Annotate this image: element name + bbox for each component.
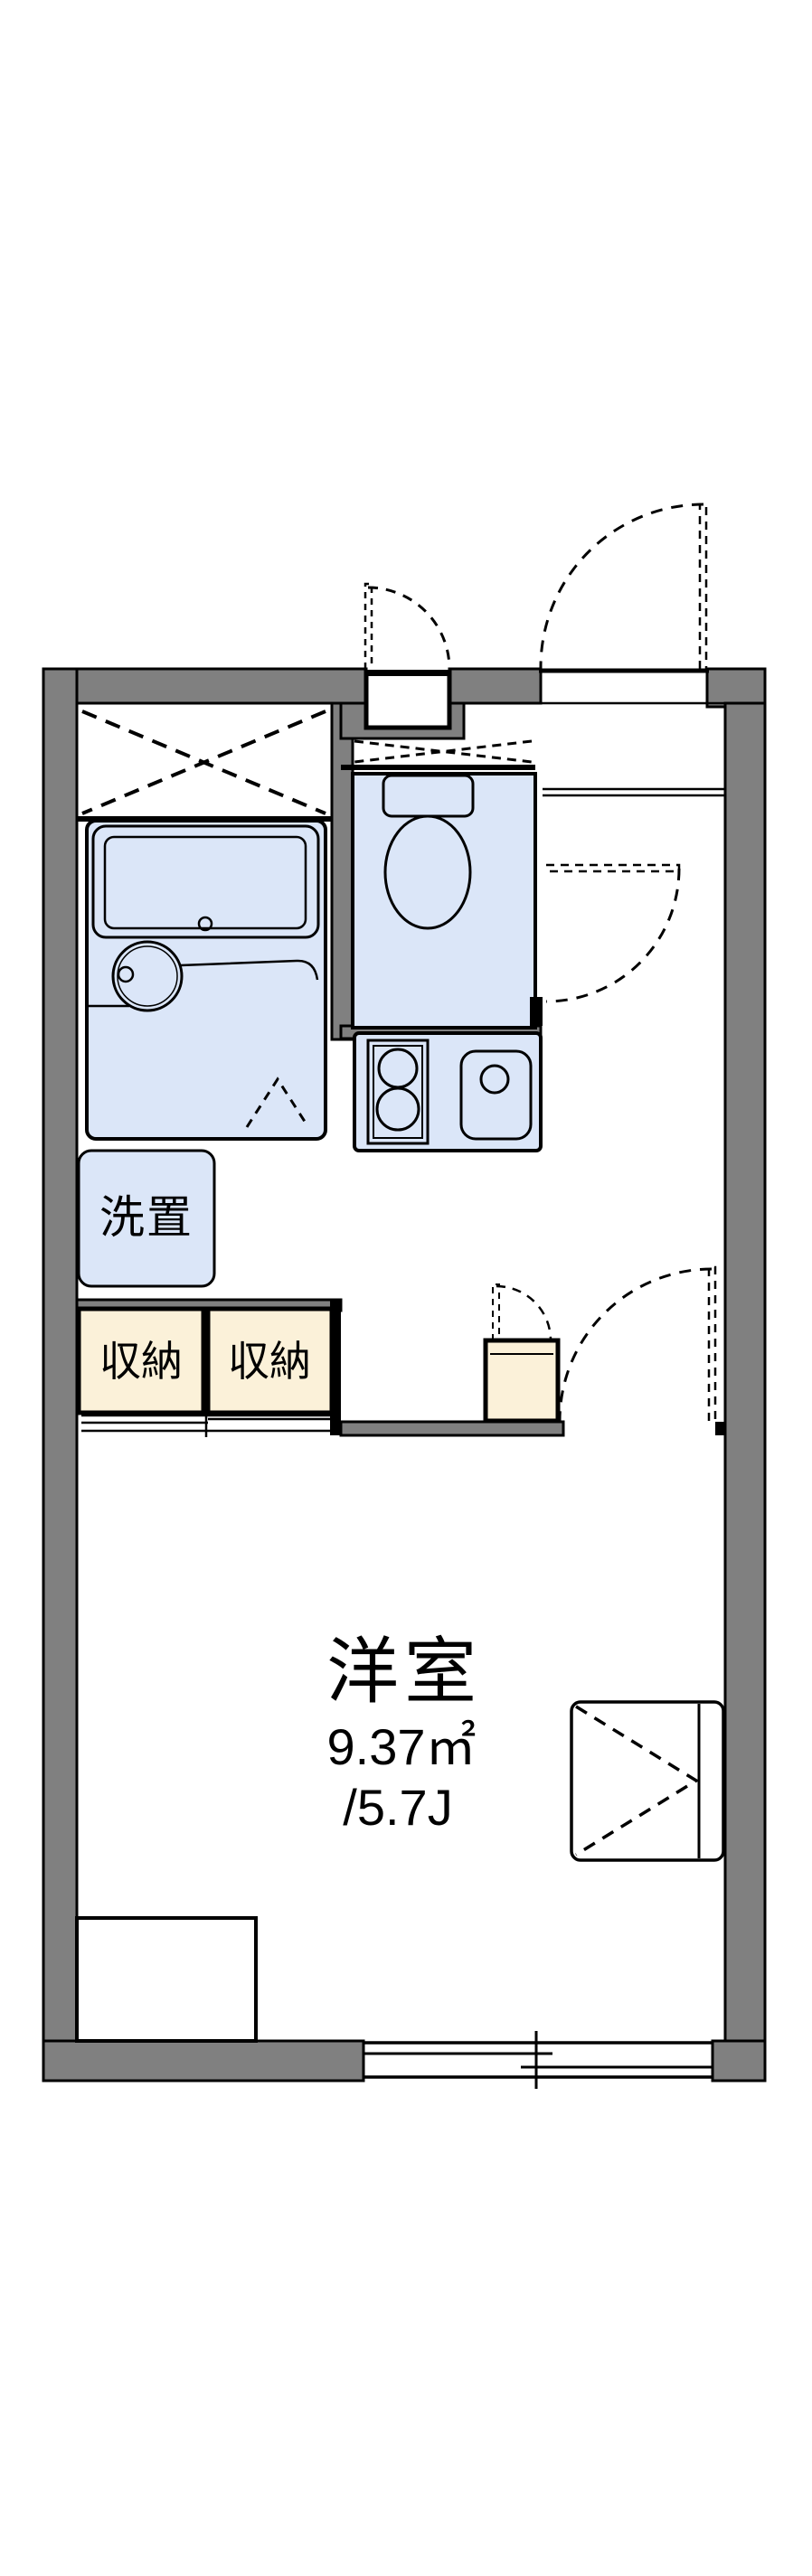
entrance-door — [541, 504, 706, 669]
counter-table — [77, 1918, 256, 2041]
room-area-label: 9.37㎡ — [327, 1722, 477, 1772]
floor-plan-page: 洗置 収納 収納 洋室 9.37㎡ /5.7J — [0, 0, 812, 2576]
washer-space-label: 洗置 — [99, 1195, 194, 1240]
toilet-bowl — [385, 816, 470, 928]
room-name-label: 洋室 — [326, 1636, 482, 1708]
toilet-tank — [383, 776, 473, 816]
floor-plan-drawing — [0, 0, 812, 2576]
shoebox-side-door — [493, 1284, 551, 1340]
room-tatami-label: /5.7J — [343, 1782, 452, 1833]
entrance-threshold — [539, 671, 724, 795]
toilet-door-jamb — [530, 997, 543, 1026]
folding-bed-desk — [571, 1702, 723, 1860]
kitchen — [354, 1033, 541, 1151]
storage-right-label: 収納 — [228, 1340, 311, 1382]
toilet-room — [341, 741, 543, 1028]
storage-left-label: 収納 — [99, 1340, 183, 1382]
entrance-pocket — [364, 671, 451, 728]
shoe-cabinet — [486, 1340, 558, 1421]
toilet-shelf-cross — [354, 741, 532, 762]
bathroom — [77, 711, 332, 1139]
toilet-door — [546, 865, 679, 1001]
sliding-window — [364, 2031, 713, 2089]
small-outward-door — [365, 584, 449, 669]
main-room-door — [560, 1267, 715, 1421]
